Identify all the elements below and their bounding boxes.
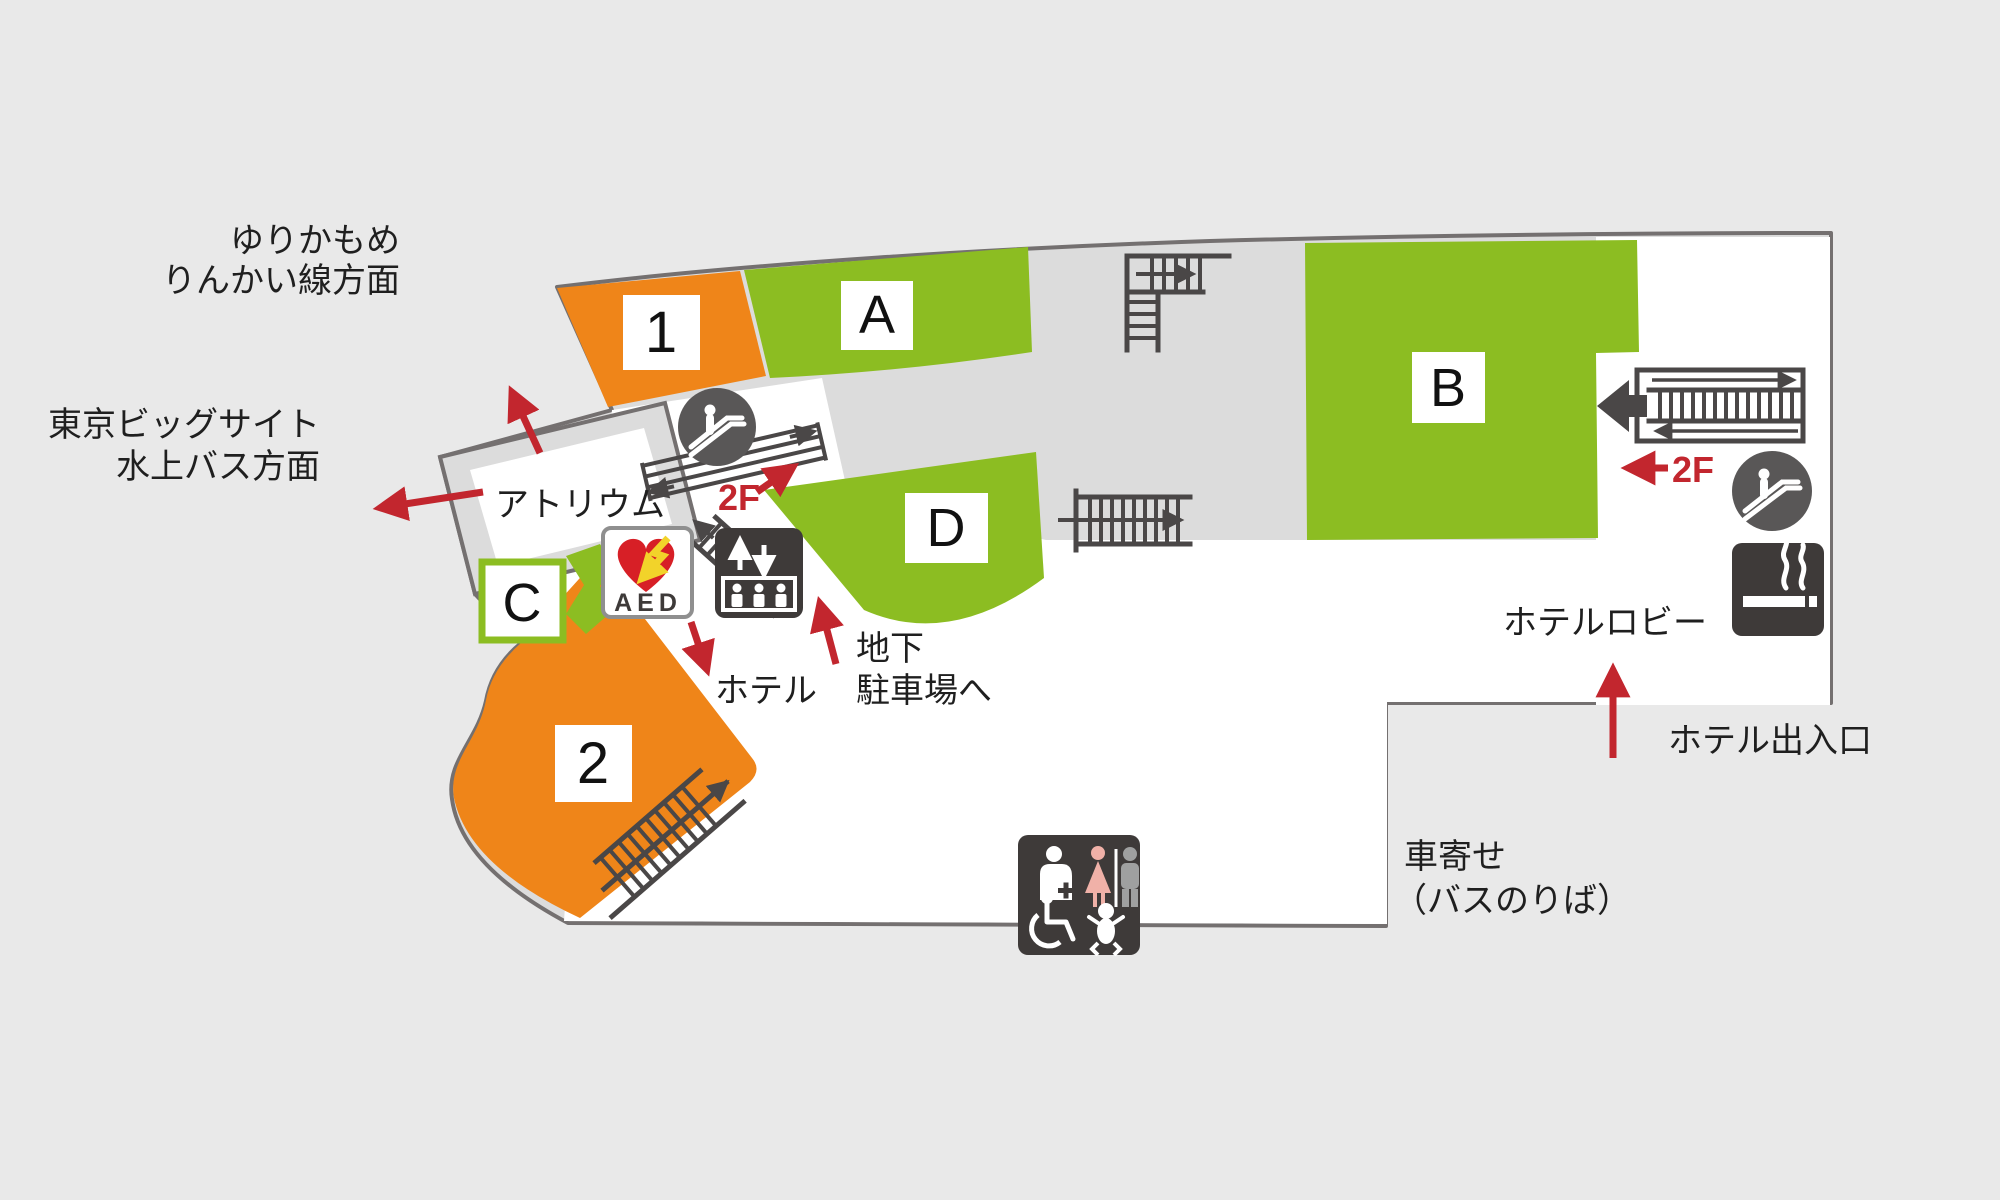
aed-icon: AED [603,528,692,617]
svg-text:D: D [927,498,966,558]
escalator-icon [678,388,756,466]
hall-a-label: A [841,281,913,350]
floor-map: 2F [0,0,2000,1200]
bigsight-label-line1: 東京ビッグサイト [48,406,320,444]
svg-text:B: B [1430,358,1466,418]
hall-2-label: 2 [555,725,632,802]
svg-text:2: 2 [577,731,609,796]
yurikamome-label-line1: ゆりかもめ [230,222,400,260]
basement-parking-label-line2: 駐車場へ [856,672,992,710]
basement-parking-label-line1: 地下 [856,630,924,668]
svg-text:1: 1 [645,300,677,365]
hall-d-label: D [905,493,988,563]
pickup-label-line2: （バスのりば） [1393,882,1631,920]
elevator-icon [715,528,803,618]
svg-text:A: A [859,285,895,345]
hall-b-label: B [1412,352,1485,423]
atrium-label: アトリウム [495,486,665,524]
smoking-area-icon [1732,538,1824,636]
pickup-label-line1: 車寄せ [1404,838,1506,876]
bigsight-label-line2: 水上バス方面 [116,448,320,486]
aed-label: AED [614,589,682,617]
svg-text:C: C [503,573,542,633]
escalator-icon [1732,451,1812,531]
yurikamome-label-line2: りんかい線方面 [162,262,400,300]
hall-c-label: C [482,562,563,640]
hotel-entrance-label: ホテル出入口 [1668,722,1872,760]
hotel-label: ホテル [715,672,817,710]
to-2f-center-label: 2F [718,477,760,518]
hall-1-label: 1 [623,295,700,370]
hotel-lobby-label: ホテルロビー [1503,604,1707,642]
to-2f-right-label: 2F [1672,449,1714,490]
restroom-icon [1018,835,1140,955]
